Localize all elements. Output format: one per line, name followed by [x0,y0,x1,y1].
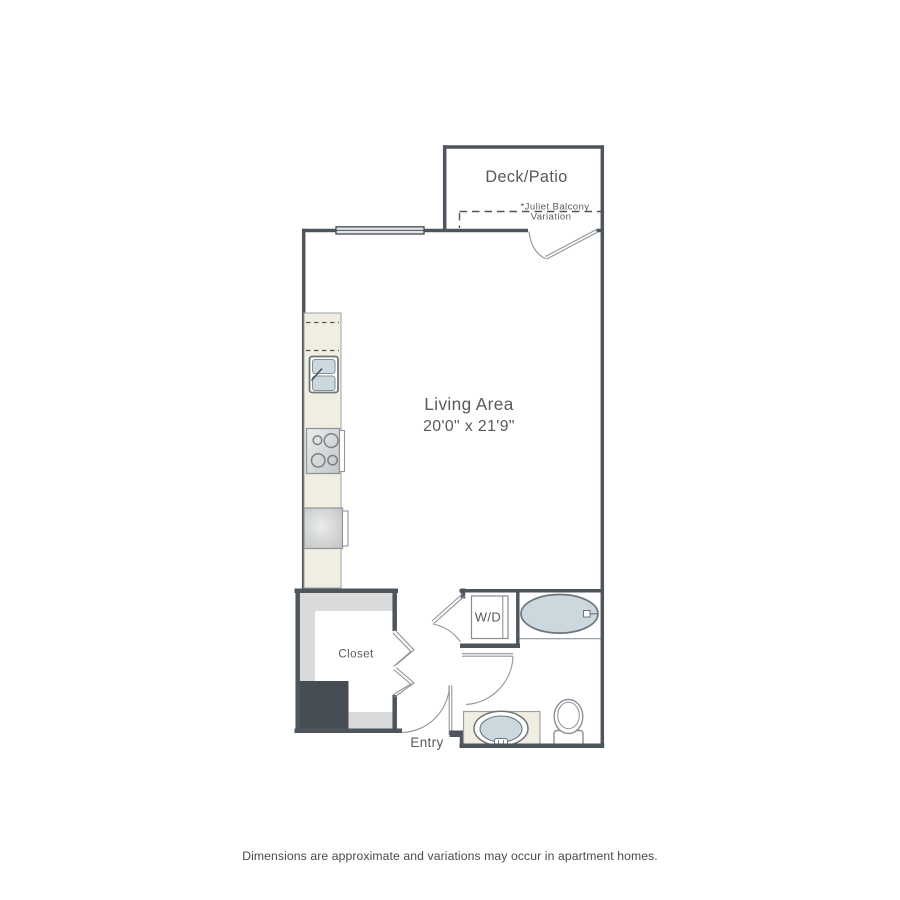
entry-door [402,686,452,736]
bathroom [432,589,604,748]
living-area-dimensions: 20'0" x 21'9" [423,418,515,435]
structural-column [297,681,349,731]
stove [307,429,345,474]
floor-plan-drawing: Deck/Patio *Juliet Balcony Variation Liv… [0,0,900,900]
floor-plan-page: Deck/Patio *Juliet Balcony Variation Liv… [0,0,900,900]
toilet [554,700,583,748]
closet-label: Closet [338,648,374,661]
juliet-balcony-label-line2: Variation [531,212,572,223]
kitchen [304,313,348,588]
bathroom-vanity [464,711,541,746]
deck-door [529,230,598,260]
closet [295,589,415,734]
kitchen-sink [310,357,339,393]
washer-dryer-door [432,594,465,642]
bathroom-door [462,654,513,705]
window [336,227,424,234]
deck-patio-label: Deck/Patio [485,168,567,186]
entry-label: Entry [410,735,443,750]
washer-dryer-label: W/D [475,610,501,625]
refrigerator [304,508,348,549]
deck-patio-walls [443,145,602,231]
bathtub [521,595,598,634]
living-area-label: Living Area [424,394,513,414]
closet-bifold-doors [393,630,414,697]
disclaimer-text: Dimensions are approximate and variation… [0,849,900,863]
